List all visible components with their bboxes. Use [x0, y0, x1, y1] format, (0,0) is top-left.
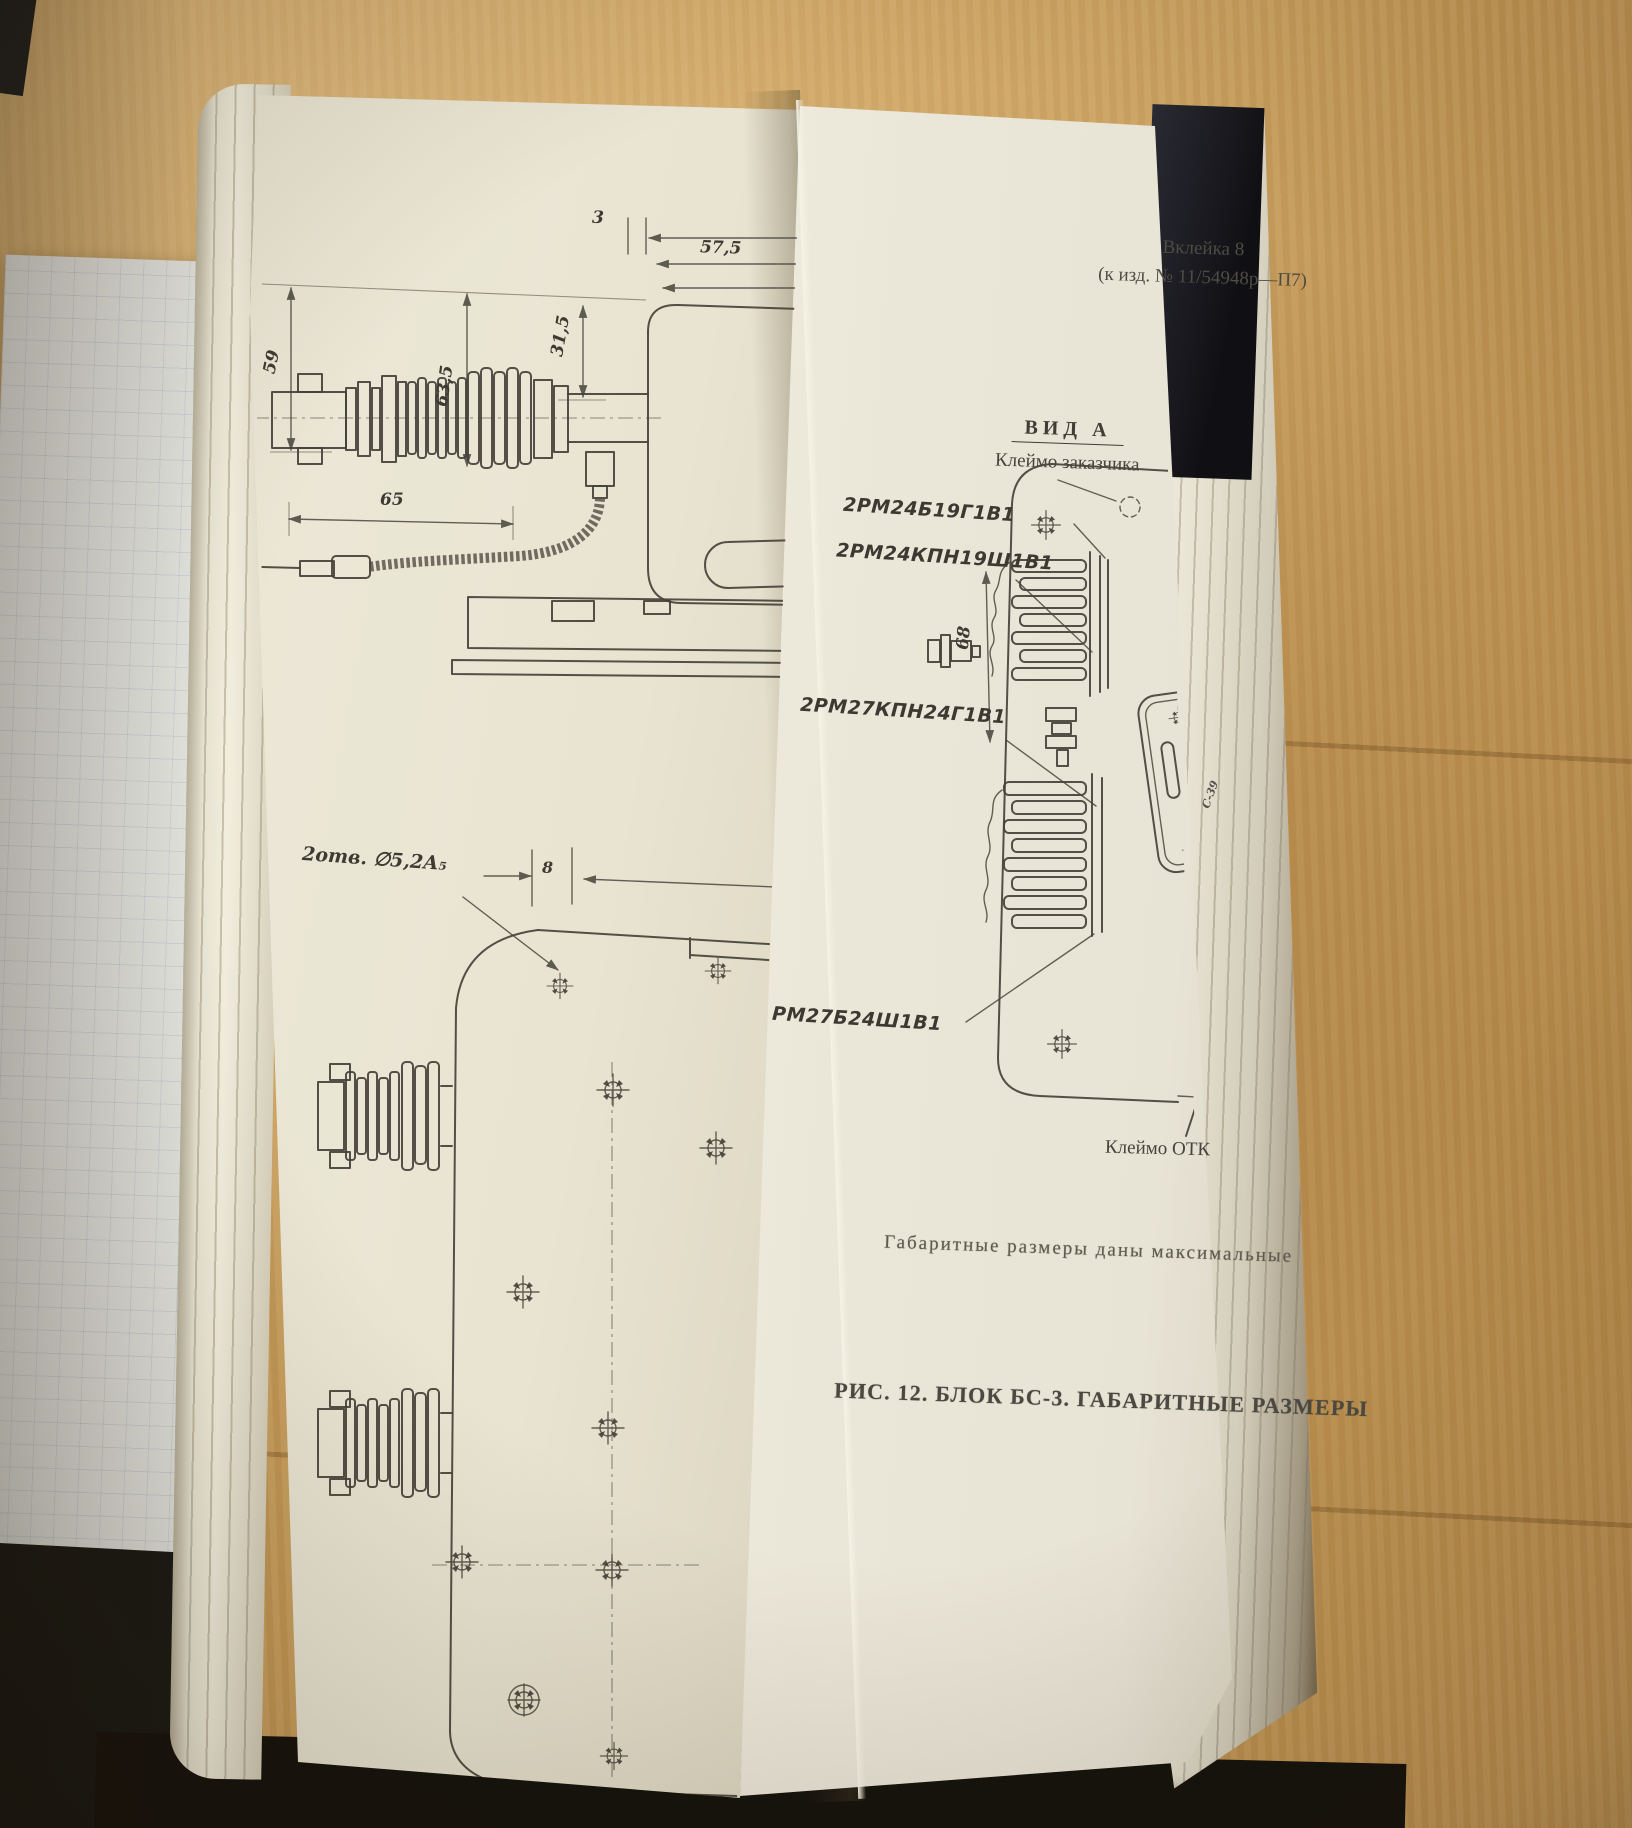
customer-stamp-mark	[1120, 497, 1140, 517]
block-side-view	[648, 305, 800, 605]
side-connector-assembly	[254, 368, 664, 498]
dimension-65-value: 65	[380, 490, 404, 510]
plate-plan-view	[432, 930, 800, 1796]
customer-stamp-leader	[1058, 480, 1116, 501]
dimension-57-5-value: 57,5	[700, 237, 742, 258]
otk-stamp-label: Клеймо ОТК	[1105, 1137, 1211, 1162]
left-page-drawing	[254, 218, 800, 1796]
base-plate-edge-view	[452, 597, 800, 677]
plan-connector-2	[318, 1389, 452, 1497]
holes-leader-line	[463, 897, 558, 970]
view-a-title: ВИД А	[1012, 416, 1125, 446]
dimension-8-value: 8	[542, 858, 553, 877]
dimension-68-value: 68	[953, 625, 975, 651]
cable-and-gland	[262, 498, 600, 578]
plan-connector	[318, 1062, 452, 1170]
otk-stamp-mark	[1186, 950, 1292, 1136]
cover-plate	[1136, 687, 1240, 874]
photo-of-open-manual: Вклейка 8 (к изд. № 11/54948р—П7) ВИД А …	[0, 0, 1632, 1828]
dimension-8	[484, 848, 800, 906]
technical-drawing	[0, 0, 1632, 1828]
insert-header: Вклейка 8 (к изд. № 11/54948р—П7)	[1071, 230, 1335, 297]
between-connector-step	[1046, 708, 1076, 766]
dimension-3-value: 3	[592, 208, 605, 228]
